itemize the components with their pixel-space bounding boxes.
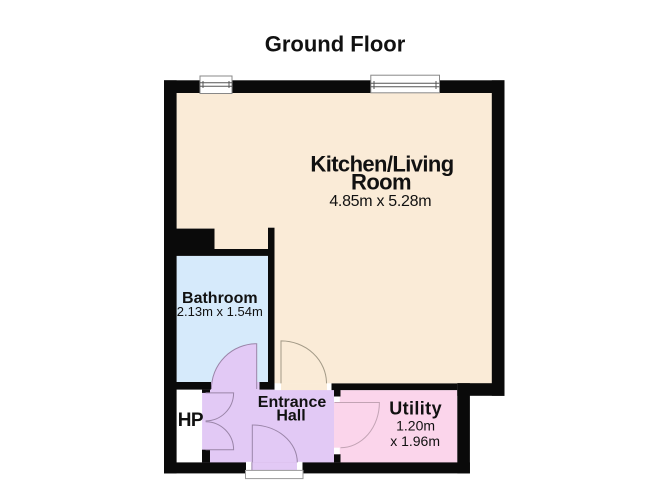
svg-text:Room: Room bbox=[351, 169, 411, 194]
svg-text:Ground Floor: Ground Floor bbox=[265, 32, 406, 57]
svg-text:x 1.96m: x 1.96m bbox=[390, 433, 440, 449]
svg-text:2.13m x 1.54m: 2.13m x 1.54m bbox=[177, 304, 263, 319]
svg-text:Hall: Hall bbox=[276, 408, 305, 425]
svg-text:HP: HP bbox=[178, 410, 204, 431]
svg-text:4.85m x 5.28m: 4.85m x 5.28m bbox=[329, 193, 431, 210]
svg-text:Utility: Utility bbox=[389, 399, 442, 419]
svg-text:1.20m: 1.20m bbox=[396, 418, 435, 434]
